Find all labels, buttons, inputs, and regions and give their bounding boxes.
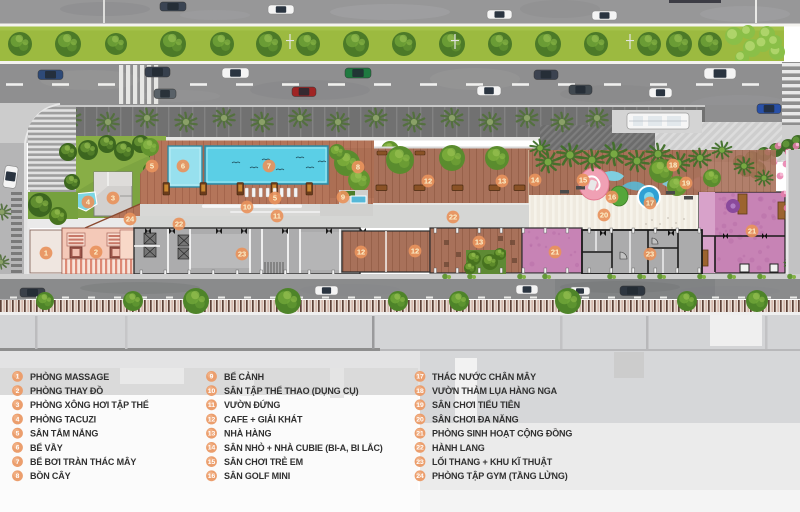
svg-text:10: 10 [243, 203, 251, 212]
svg-text:PHÒNG TACUZI: PHÒNG TACUZI [30, 413, 96, 424]
svg-text:5: 5 [150, 162, 154, 171]
svg-text:22: 22 [175, 220, 183, 229]
svg-text:SÂN CHƠI ĐA NĂNG: SÂN CHƠI ĐA NĂNG [432, 413, 519, 424]
svg-text:10: 10 [208, 388, 216, 395]
svg-text:2: 2 [94, 248, 98, 257]
svg-text:THÁC NƯỚC CHÂN MÂY: THÁC NƯỚC CHÂN MÂY [432, 371, 536, 382]
svg-text:20: 20 [600, 211, 608, 220]
svg-text:20: 20 [416, 416, 424, 423]
svg-text:SÂN TẬP THỂ THAO (DỤNG CỤ): SÂN TẬP THỂ THAO (DỤNG CỤ) [224, 385, 359, 396]
svg-text:VƯỜN ĐỨNG: VƯỜN ĐỨNG [224, 399, 280, 410]
svg-text:6: 6 [181, 162, 185, 171]
svg-text:14: 14 [531, 176, 540, 185]
svg-text:17: 17 [646, 199, 654, 208]
svg-text:15: 15 [579, 176, 587, 185]
svg-text:1: 1 [16, 374, 20, 381]
svg-text:13: 13 [498, 177, 506, 186]
svg-text:PHÒNG XÔNG HƠI TẬP THỂ: PHÒNG XÔNG HƠI TẬP THỂ [30, 399, 149, 410]
svg-text:8: 8 [16, 473, 20, 480]
svg-text:4: 4 [16, 416, 20, 423]
svg-text:18: 18 [416, 388, 424, 395]
svg-text:23: 23 [238, 250, 246, 259]
svg-text:LỐI THANG + KHU KĨ THUẬT: LỐI THANG + KHU KĨ THUẬT [432, 456, 553, 467]
svg-text:3: 3 [111, 194, 115, 203]
svg-text:13: 13 [208, 431, 216, 438]
svg-text:BỂ BƠI TRÀN THÁC MÂY: BỂ BƠI TRÀN THÁC MÂY [30, 456, 136, 467]
svg-text:23: 23 [646, 250, 654, 259]
svg-text:SÂN GOLF MINI: SÂN GOLF MINI [224, 470, 290, 481]
svg-text:NHÀ HÀNG: NHÀ HÀNG [224, 429, 271, 439]
svg-text:12: 12 [424, 177, 432, 186]
svg-text:PHÒNG MASSAGE: PHÒNG MASSAGE [30, 371, 109, 382]
svg-text:21: 21 [748, 227, 756, 236]
svg-text:5: 5 [16, 431, 20, 438]
svg-text:6: 6 [16, 445, 20, 452]
svg-text:SÂN CHƠI TIỂU TIÊN: SÂN CHƠI TIỂU TIÊN [432, 399, 520, 410]
svg-text:19: 19 [682, 179, 690, 188]
svg-text:BỒN CÂY: BỒN CÂY [30, 470, 71, 481]
svg-text:14: 14 [208, 445, 216, 452]
svg-text:21: 21 [416, 431, 424, 438]
svg-text:22: 22 [416, 445, 424, 452]
svg-text:VƯỜN THẢM LỤA HÀNG NGA: VƯỜN THẢM LỤA HÀNG NGA [432, 385, 558, 396]
svg-text:22: 22 [449, 213, 457, 222]
svg-text:19: 19 [416, 402, 424, 409]
svg-text:9: 9 [210, 374, 214, 381]
svg-text:11: 11 [273, 212, 281, 221]
svg-text:3: 3 [16, 402, 20, 409]
svg-text:24: 24 [126, 215, 135, 224]
svg-text:16: 16 [608, 193, 616, 202]
svg-text:17: 17 [416, 374, 424, 381]
svg-text:12: 12 [411, 247, 419, 256]
svg-text:2: 2 [16, 388, 20, 395]
svg-text:PHÒNG SINH HOẠT CỘNG ĐỒNG: PHÒNG SINH HOẠT CỘNG ĐỒNG [432, 428, 572, 439]
svg-text:15: 15 [208, 459, 216, 466]
svg-text:16: 16 [208, 473, 216, 480]
svg-text:SÂN NHỎ + NHÀ CUBIE (BI-A, BI: SÂN NHỎ + NHÀ CUBIE (BI-A, BI LẮC) [224, 442, 383, 453]
svg-text:12: 12 [357, 248, 365, 257]
svg-text:BỂ CẢNH: BỂ CẢNH [224, 371, 264, 382]
svg-text:HÀNH LANG: HÀNH LANG [432, 443, 485, 453]
svg-text:PHÒNG THAY ĐỒ: PHÒNG THAY ĐỒ [30, 385, 103, 396]
svg-text:24: 24 [416, 473, 424, 480]
svg-text:21: 21 [551, 248, 559, 257]
svg-text:CAFE + GIẢI KHÁT: CAFE + GIẢI KHÁT [224, 413, 303, 424]
svg-text:9: 9 [341, 193, 345, 202]
svg-text:18: 18 [669, 161, 677, 170]
svg-text:5: 5 [273, 194, 277, 203]
svg-text:13: 13 [475, 238, 483, 247]
svg-text:1: 1 [44, 249, 48, 258]
svg-text:PHÒNG TẬP GYM (TẦNG LỬNG): PHÒNG TẬP GYM (TẦNG LỬNG) [432, 470, 568, 481]
svg-text:7: 7 [267, 162, 271, 171]
svg-text:12: 12 [208, 416, 216, 423]
svg-text:23: 23 [416, 459, 424, 466]
svg-text:11: 11 [208, 402, 215, 409]
svg-text:8: 8 [356, 163, 360, 172]
svg-text:7: 7 [16, 459, 20, 466]
svg-text:SÂN CHƠI TRẺ EM: SÂN CHƠI TRẺ EM [224, 456, 303, 467]
svg-text:SÂN TẮM NẮNG: SÂN TẮM NẮNG [30, 428, 98, 439]
svg-text:BỂ VẦY: BỂ VẦY [30, 442, 63, 453]
